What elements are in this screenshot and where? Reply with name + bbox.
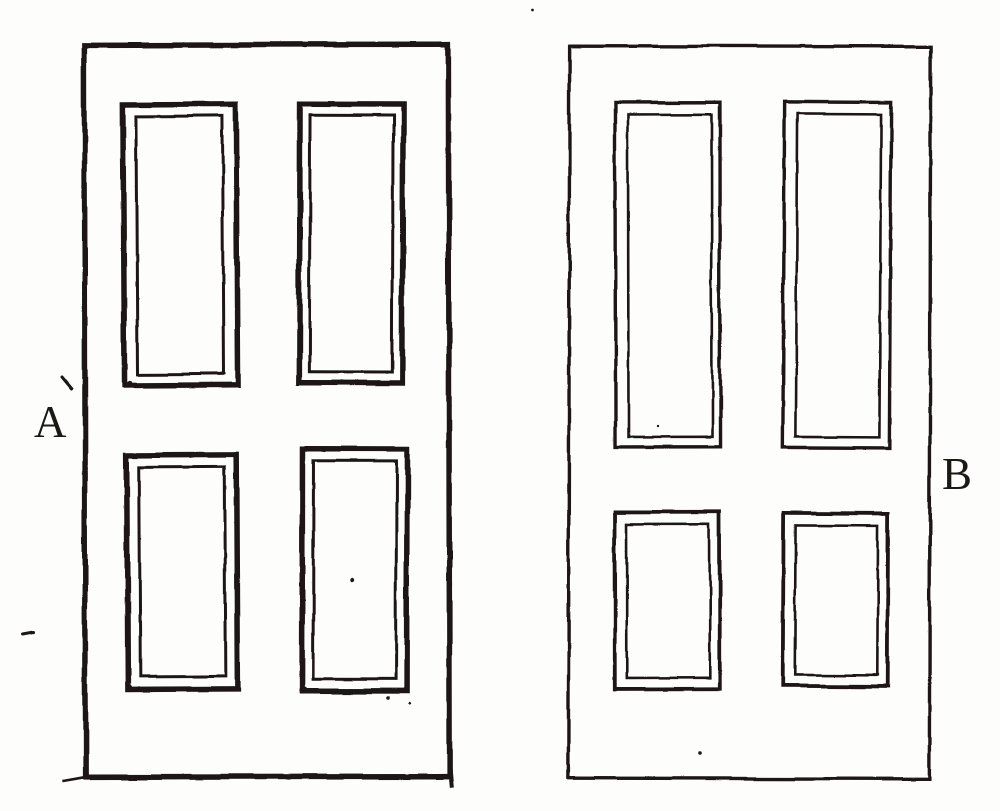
- door-a-corner-tick: [450, 769, 452, 786]
- ink-speck: [386, 696, 390, 700]
- ink-speck: [531, 9, 534, 12]
- ink-speck: [657, 425, 659, 427]
- ink-blob: [127, 685, 132, 690]
- book-illustration-page: A B: [0, 0, 1000, 811]
- ink-speck: [350, 579, 354, 583]
- ink-blob: [234, 686, 238, 690]
- ink-blob: [403, 687, 408, 692]
- ink-speck: [22, 632, 33, 634]
- two-doors-figure: A B: [0, 0, 1000, 811]
- door-a-label: A: [34, 397, 67, 447]
- ink-blob: [302, 686, 307, 691]
- ink-speck: [698, 751, 702, 755]
- ink-blob: [128, 381, 133, 386]
- ink-speck: [409, 702, 411, 704]
- door-b-label: B: [942, 449, 972, 499]
